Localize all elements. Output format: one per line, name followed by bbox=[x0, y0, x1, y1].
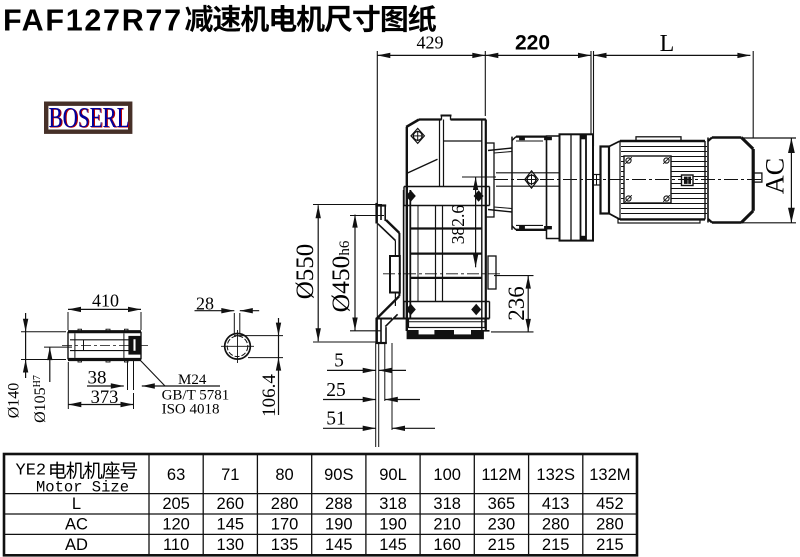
svg-text:L: L bbox=[660, 31, 675, 57]
svg-text:110: 110 bbox=[163, 536, 189, 554]
svg-text:Ø140: Ø140 bbox=[6, 383, 23, 419]
svg-text:130: 130 bbox=[217, 536, 245, 554]
svg-text:5: 5 bbox=[334, 351, 344, 372]
svg-text:132M: 132M bbox=[589, 466, 630, 484]
svg-text:205: 205 bbox=[162, 495, 190, 513]
svg-text:135: 135 bbox=[271, 536, 299, 554]
svg-text:25: 25 bbox=[326, 380, 346, 401]
svg-text:90S: 90S bbox=[324, 466, 353, 484]
svg-text:63: 63 bbox=[167, 466, 185, 484]
svg-text:Ø550: Ø550 bbox=[292, 244, 319, 300]
svg-text:318: 318 bbox=[433, 495, 461, 513]
svg-text:210: 210 bbox=[433, 516, 461, 534]
svg-text:Ø105H7: Ø105H7 bbox=[32, 375, 49, 423]
svg-text:170: 170 bbox=[271, 516, 299, 534]
svg-text:190: 190 bbox=[379, 516, 407, 534]
svg-text:220: 220 bbox=[515, 32, 550, 55]
svg-text:288: 288 bbox=[325, 495, 353, 513]
svg-text:215: 215 bbox=[542, 536, 570, 554]
svg-text:AC: AC bbox=[761, 158, 790, 194]
svg-text:120: 120 bbox=[162, 516, 190, 534]
svg-text:Motor Size: Motor Size bbox=[36, 479, 129, 497]
svg-text:AD: AD bbox=[65, 536, 88, 554]
svg-text:Ø450h6: Ø450h6 bbox=[326, 240, 355, 312]
svg-text:71: 71 bbox=[221, 466, 239, 484]
svg-text:80: 80 bbox=[275, 466, 293, 484]
svg-text:100: 100 bbox=[433, 466, 461, 484]
svg-text:L: L bbox=[72, 495, 81, 513]
svg-text:215: 215 bbox=[596, 536, 624, 554]
svg-text:413: 413 bbox=[542, 495, 570, 513]
svg-text:429: 429 bbox=[417, 33, 444, 53]
svg-text:260: 260 bbox=[217, 495, 245, 513]
svg-text:280: 280 bbox=[271, 495, 299, 513]
svg-text:382.6: 382.6 bbox=[448, 205, 468, 245]
svg-text:132S: 132S bbox=[536, 466, 575, 484]
svg-text:AC: AC bbox=[65, 516, 88, 534]
svg-text:145: 145 bbox=[325, 536, 353, 554]
svg-text:145: 145 bbox=[217, 516, 245, 534]
svg-text:FAF127R77: FAF127R77 bbox=[3, 4, 183, 38]
svg-text:318: 318 bbox=[379, 495, 407, 513]
svg-text:BOSERL: BOSERL bbox=[49, 103, 130, 134]
svg-text:112M: 112M bbox=[481, 466, 521, 484]
svg-text:145: 145 bbox=[379, 536, 407, 554]
svg-text:51: 51 bbox=[326, 409, 346, 430]
svg-text:230: 230 bbox=[488, 516, 516, 534]
svg-text:410: 410 bbox=[92, 291, 119, 311]
svg-text:38: 38 bbox=[88, 368, 107, 389]
svg-text:M24: M24 bbox=[178, 372, 207, 388]
svg-text:452: 452 bbox=[596, 495, 624, 513]
svg-text:215: 215 bbox=[488, 536, 516, 554]
svg-text:280: 280 bbox=[542, 516, 570, 534]
svg-text:ISO 4018: ISO 4018 bbox=[162, 402, 220, 418]
svg-text:236: 236 bbox=[504, 286, 529, 321]
svg-text:365: 365 bbox=[488, 495, 516, 513]
svg-text:90L: 90L bbox=[379, 466, 407, 484]
svg-text:190: 190 bbox=[325, 516, 353, 534]
svg-text:106.4: 106.4 bbox=[259, 374, 280, 417]
svg-text:280: 280 bbox=[596, 516, 624, 534]
svg-text:160: 160 bbox=[433, 536, 461, 554]
